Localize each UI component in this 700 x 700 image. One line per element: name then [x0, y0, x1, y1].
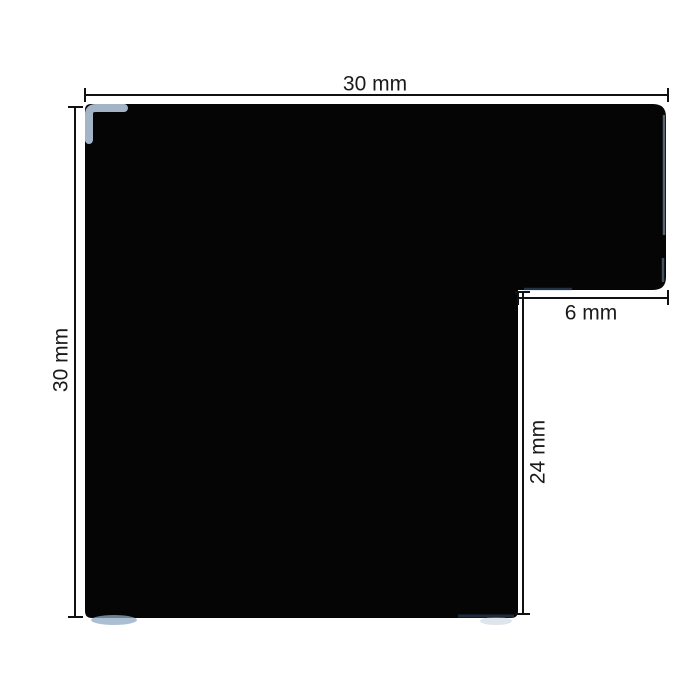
smudge-bottom-right [480, 617, 512, 625]
technical-drawing-canvas: 30 mm 30 mm 6 mm 24 mm [0, 0, 700, 700]
dimension-label-overall-height: 30 mm [51, 328, 72, 392]
smudge-bottom-left [91, 615, 137, 625]
profile-shape [85, 104, 666, 618]
dimension-label-rebate-depth: 24 mm [528, 420, 549, 484]
dimension-label-rebate-width: 6 mm [565, 303, 618, 324]
profile-drawing [0, 0, 700, 700]
dimension-label-overall-width: 30 mm [343, 74, 407, 95]
